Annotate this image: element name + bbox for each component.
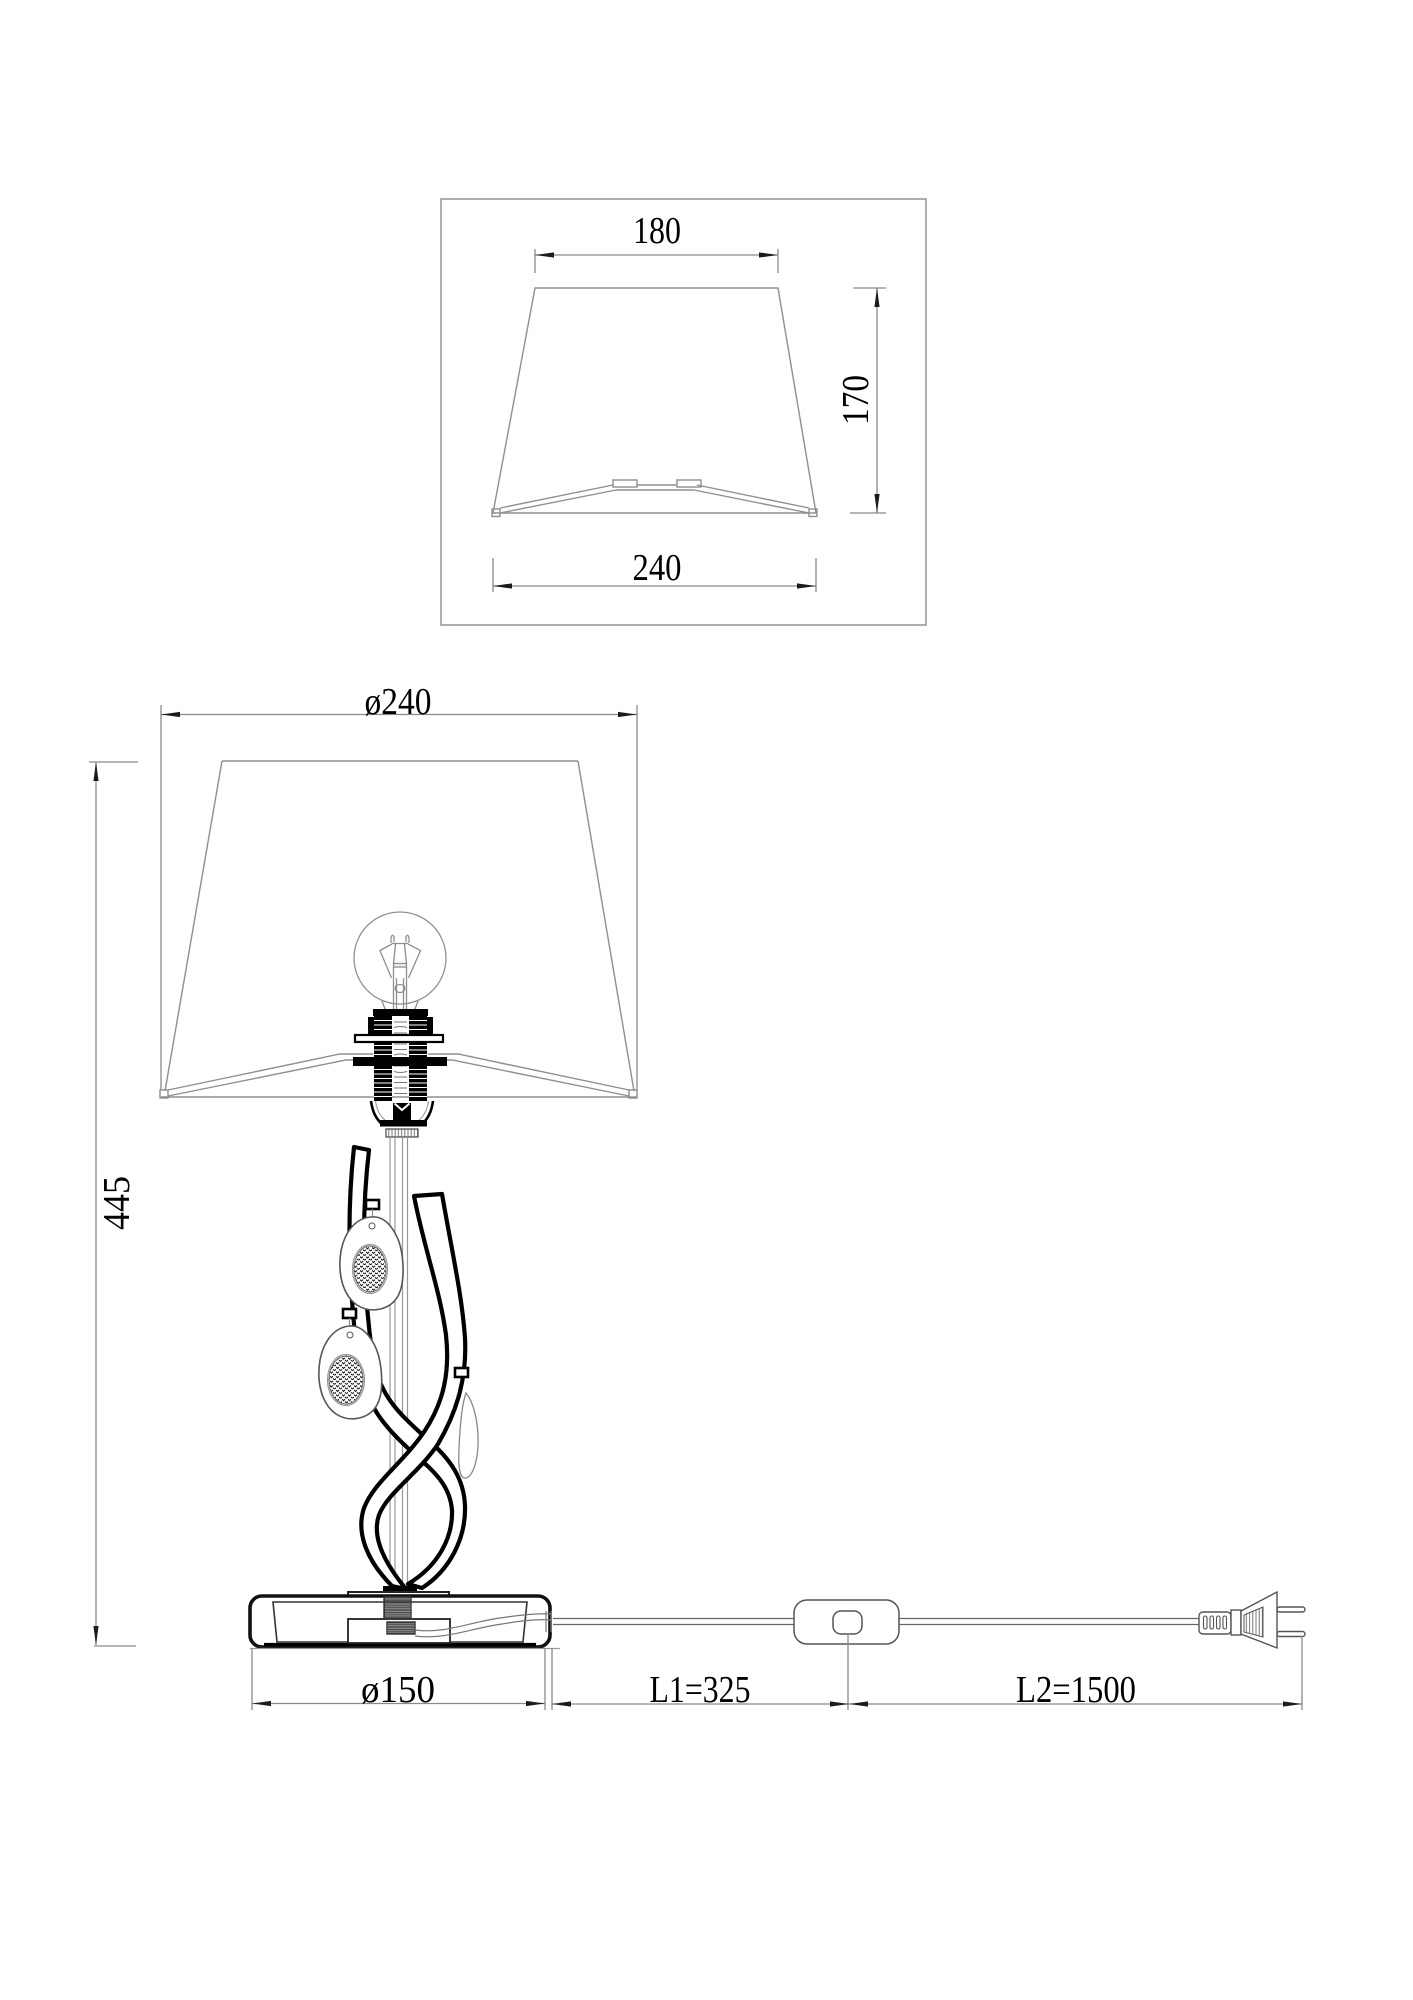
svg-text:ø150: ø150 [361,1669,435,1711]
svg-text:L1=325: L1=325 [650,1669,751,1711]
svg-text:ø240: ø240 [365,681,432,723]
svg-text:240: 240 [633,547,682,589]
svg-text:170: 170 [835,375,877,425]
svg-text:180: 180 [633,210,681,252]
svg-text:445: 445 [96,1176,138,1230]
svg-text:L2=1500: L2=1500 [1016,1669,1136,1711]
